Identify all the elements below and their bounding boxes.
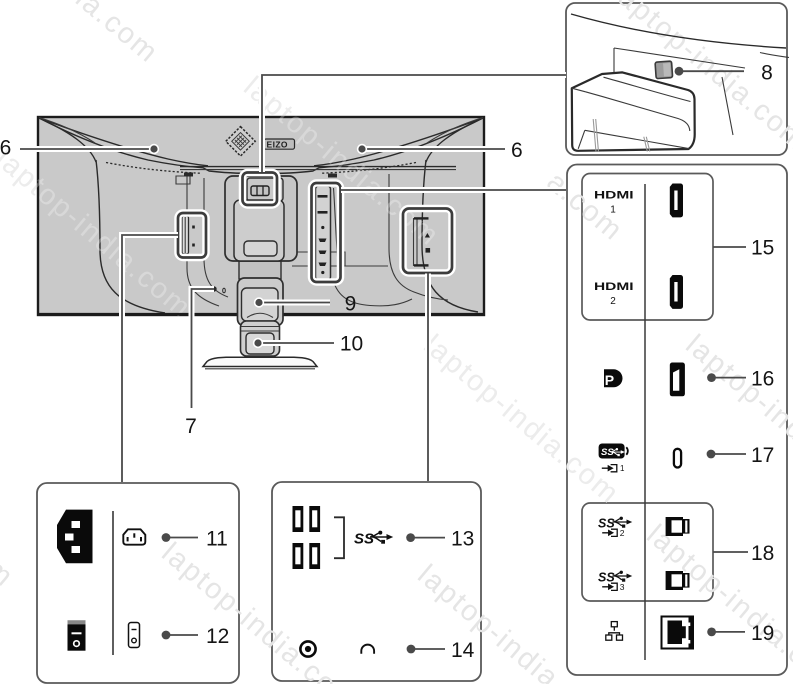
svg-text:P: P [605, 372, 614, 388]
svg-text:HDMI: HDMI [594, 190, 634, 202]
svg-text:2: 2 [610, 296, 616, 307]
svg-text:SS: SS [598, 571, 615, 585]
svg-text:19: 19 [751, 622, 774, 645]
svg-text:6: 6 [0, 137, 11, 160]
svg-text:13: 13 [451, 528, 474, 551]
svg-text:SS: SS [598, 517, 615, 531]
svg-text:6: 6 [511, 139, 523, 162]
svg-text:11: 11 [206, 528, 228, 551]
svg-text:12: 12 [206, 625, 229, 648]
svg-text:10: 10 [340, 333, 363, 356]
svg-text:9: 9 [345, 293, 357, 316]
svg-text:8: 8 [761, 62, 773, 85]
svg-text:EIZO: EIZO [267, 139, 288, 149]
svg-text:18: 18 [751, 542, 774, 565]
svg-text:1: 1 [620, 464, 625, 473]
svg-text:3: 3 [620, 582, 625, 592]
svg-text:1: 1 [610, 205, 616, 216]
svg-text:15: 15 [751, 237, 774, 260]
svg-text:2: 2 [620, 528, 625, 538]
svg-text:7: 7 [185, 415, 197, 438]
svg-text:17: 17 [751, 444, 774, 467]
svg-text:SS: SS [601, 447, 614, 458]
svg-text:14: 14 [451, 639, 475, 662]
svg-text:HDMI: HDMI [594, 281, 634, 293]
svg-text:16: 16 [751, 368, 774, 391]
svg-text:SS: SS [354, 531, 374, 548]
